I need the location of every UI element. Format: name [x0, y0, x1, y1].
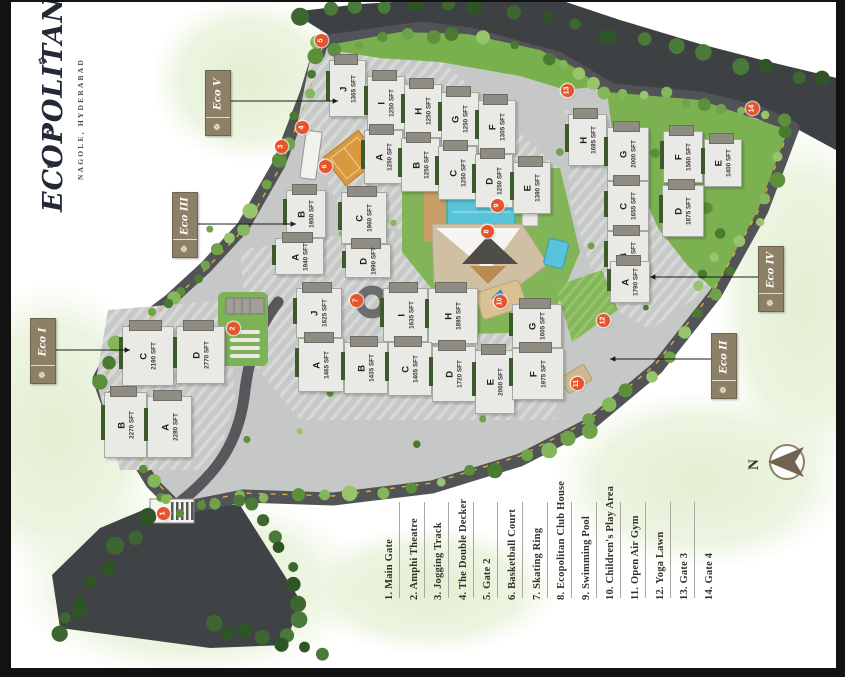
- tree: [378, 1, 391, 14]
- tree: [479, 416, 486, 423]
- tree: [211, 243, 223, 255]
- marker-number: 13: [563, 86, 570, 94]
- legend-item-8: 8. Ecopolitan Club House: [556, 481, 567, 600]
- tower-area: 2280 SFT: [172, 413, 179, 441]
- tower-letter: E: [523, 174, 534, 202]
- tree: [669, 38, 685, 54]
- tree: [543, 53, 555, 65]
- tower-letter: J: [338, 75, 349, 103]
- tree: [324, 2, 338, 16]
- tower-eco-5-f: F1305 SFT: [478, 100, 516, 154]
- tower-area: 1365 SFT: [350, 75, 357, 103]
- tree: [770, 172, 785, 187]
- tree: [59, 612, 70, 623]
- logo-ecopolitan: ECOPOLITAN: [38, 0, 69, 212]
- tree: [197, 501, 206, 510]
- tree: [292, 488, 305, 501]
- tower-eco-4-h: H1685 SFT: [568, 114, 607, 166]
- legend-separator: [596, 502, 597, 598]
- tree: [402, 28, 414, 40]
- tree: [640, 91, 649, 100]
- tower-letter: D: [445, 360, 456, 388]
- tower-eco-5-i: I1250 SFT: [367, 76, 405, 130]
- tree: [759, 193, 770, 204]
- tower-letter: B: [357, 354, 368, 382]
- tower-area: 2060 SFT: [498, 368, 505, 396]
- legend-separator: [399, 502, 400, 598]
- tower-area: 1790 SFT: [633, 268, 640, 296]
- marker-number: 1: [160, 511, 167, 515]
- zone-label-eco-4: Eco IV❁: [758, 246, 784, 312]
- tower-area: 1990 SFT: [371, 247, 378, 275]
- tree: [139, 508, 156, 525]
- tower-letter: A: [160, 413, 171, 441]
- tower-eco-5-j: J1365 SFT: [329, 60, 366, 117]
- tower-eco-2-i: I1635 SFT: [383, 288, 428, 342]
- tree: [756, 218, 764, 226]
- legend-item-14: 14. Gate 4: [704, 553, 715, 600]
- tree: [759, 59, 773, 73]
- tower-area: 1635 SFT: [408, 301, 415, 329]
- tower-letter: H: [444, 302, 455, 330]
- tree: [147, 474, 161, 488]
- tree: [262, 180, 272, 190]
- amphi-stage: [226, 298, 264, 314]
- tower-letter: H: [414, 97, 425, 125]
- tree: [541, 443, 557, 459]
- tree: [161, 494, 171, 504]
- leaf-icon: ❁: [180, 245, 190, 252]
- tree: [734, 235, 746, 247]
- tree: [511, 41, 519, 49]
- tree: [92, 374, 107, 389]
- tower-area: 1435 SFT: [369, 354, 376, 382]
- tree: [286, 577, 301, 592]
- tree: [291, 611, 308, 628]
- tree: [778, 113, 791, 126]
- legend-separator: [497, 502, 498, 598]
- tower-area: 1250 SFT: [497, 167, 504, 195]
- tree: [245, 497, 258, 510]
- map-marker-6: 6: [319, 160, 332, 173]
- tower-letter: C: [619, 192, 630, 220]
- tower-eco-4-g: G2000 SFT: [607, 127, 649, 181]
- zone-label-text: Eco III: [180, 197, 191, 235]
- tree: [587, 77, 600, 90]
- tower-letter: G: [528, 312, 539, 340]
- tree: [693, 308, 703, 318]
- tree: [664, 351, 676, 363]
- marker-number: 10: [496, 297, 503, 305]
- tree: [661, 87, 672, 98]
- tree: [679, 326, 692, 339]
- tower-eco-2-b: B1435 SFT: [344, 342, 388, 394]
- legend-item-3: 3. Jogging Track: [433, 522, 444, 600]
- tower-eco-3-b: B1950 SFT: [286, 190, 326, 238]
- tower-eco-2-f: F1975 SFT: [512, 348, 564, 400]
- tower-letter: G: [619, 140, 630, 168]
- tree: [377, 32, 387, 42]
- tower-eco-5-g: G1250 SFT: [441, 92, 479, 146]
- legend-item-2: 2. Amphi Theatre: [409, 518, 420, 600]
- tower-area: 1720 SFT: [457, 360, 464, 388]
- tree: [290, 111, 299, 120]
- tree: [288, 562, 298, 572]
- legend-item-13: 13. Gate 3: [679, 553, 690, 600]
- tower-eco-1-b: B2270 SFT: [104, 392, 147, 458]
- tree: [319, 490, 330, 501]
- tree: [377, 487, 389, 499]
- tower-area: 1940 SFT: [302, 243, 309, 271]
- tree: [761, 111, 769, 119]
- tree: [342, 486, 358, 502]
- tree: [600, 29, 616, 45]
- tower-eco-4-f: F1560 SFT: [663, 131, 703, 183]
- tower-area: 1250 SFT: [426, 97, 433, 125]
- tower-letter: D: [191, 341, 202, 369]
- logo-location: NAGOLE, HYDERABAD: [76, 58, 85, 180]
- tower-eco-4-e: E1400 SFT: [704, 139, 742, 187]
- leaf-icon: ❁: [766, 299, 776, 306]
- legend-separator: [473, 502, 474, 598]
- legend-item-1: 1. Main Gate: [384, 539, 395, 600]
- tower-area: 1625 SFT: [322, 299, 329, 327]
- tree: [445, 27, 459, 41]
- tower-area: 1400 SFT: [726, 149, 733, 177]
- tower-eco-2-j: J1625 SFT: [296, 288, 342, 338]
- legend-item-7: 7. Skating Ring: [532, 528, 543, 600]
- tree: [646, 371, 658, 383]
- tree: [643, 305, 649, 311]
- legend-separator: [670, 502, 671, 598]
- tower-letter: E: [486, 368, 497, 396]
- tower-area: 2190 SFT: [151, 342, 158, 370]
- tree: [237, 623, 252, 638]
- tower-eco-5-h: H1250 SFT: [404, 84, 442, 138]
- tower-area: 1250 SFT: [389, 89, 396, 117]
- tree: [773, 152, 783, 162]
- tower-area: 1250 SFT: [460, 159, 467, 187]
- tree: [779, 125, 792, 138]
- leaf-icon: ❁: [719, 386, 729, 393]
- tree: [257, 514, 269, 526]
- map-marker-8: 8: [481, 225, 494, 238]
- map-marker-14: 14: [746, 102, 759, 115]
- legend-item-5: 5. Gate 2: [482, 558, 493, 600]
- tree: [291, 8, 309, 26]
- tree: [437, 478, 446, 487]
- legend-separator: [694, 502, 695, 598]
- tree: [716, 104, 726, 114]
- tower-eco-5-e: E1390 SFT: [513, 162, 551, 214]
- legend-item-9: 9. Swimming Pool: [581, 516, 592, 600]
- tree: [355, 41, 363, 49]
- tree: [570, 19, 581, 30]
- tree: [139, 465, 148, 474]
- tree: [695, 44, 712, 61]
- tower-eco-2-c: C1405 SFT: [388, 342, 432, 396]
- tree: [221, 626, 234, 639]
- tree: [194, 274, 203, 283]
- tower-letter: H: [578, 126, 589, 154]
- master-plan: ECOPOLITAN NAGOLE, HYDERABAD ✿ ✿ ✿ N J13…: [0, 0, 845, 677]
- tower-letter: A: [312, 351, 323, 379]
- tree: [237, 223, 250, 236]
- legend-separator: [645, 502, 646, 598]
- tree: [52, 626, 68, 642]
- marker-number: 2: [230, 326, 237, 330]
- tree: [559, 60, 567, 68]
- tree: [650, 149, 659, 158]
- flower-icon: ✿: [38, 56, 46, 67]
- tower-area: 1250 SFT: [386, 143, 393, 171]
- tree: [487, 463, 502, 478]
- tree: [299, 642, 310, 653]
- tree: [618, 89, 627, 98]
- tower-letter: B: [116, 411, 127, 439]
- tree: [224, 233, 235, 244]
- tower-area: 1250 SFT: [423, 151, 430, 179]
- tower-letter: I: [396, 301, 407, 329]
- tower-letter: F: [529, 360, 540, 388]
- tower-eco-1-d: D2770 SFT: [176, 326, 225, 384]
- map-marker-2: 2: [227, 322, 240, 335]
- tower-letter: C: [139, 342, 150, 370]
- legend-separator: [547, 502, 548, 598]
- zone-label-text: Eco V: [213, 78, 224, 110]
- legend-item-4: 4. The Double Decker: [458, 499, 469, 600]
- tree: [272, 153, 287, 168]
- tree: [102, 356, 115, 369]
- legend-item-6: 6. Basketball Court: [507, 509, 518, 600]
- tree: [793, 71, 806, 84]
- tree: [101, 562, 116, 577]
- tree: [243, 203, 258, 218]
- tower-eco-3-c: C1960 SFT: [341, 192, 387, 244]
- marker-number: 4: [299, 125, 306, 129]
- tower-area: 1975 SFT: [541, 360, 548, 388]
- legend-separator: [448, 502, 449, 598]
- tree: [710, 252, 720, 262]
- tree: [84, 576, 96, 588]
- tower-letter: D: [359, 247, 370, 275]
- tree: [698, 98, 711, 111]
- tower-eco-2-d: D1720 SFT: [432, 346, 476, 402]
- tree: [243, 436, 250, 443]
- tree: [464, 465, 475, 476]
- tree: [476, 30, 490, 44]
- tree: [259, 493, 269, 503]
- tower-letter: F: [674, 143, 685, 171]
- legend-item-10: 10. Children's Play Area: [605, 486, 616, 600]
- zone-label-text: Eco II: [719, 340, 730, 373]
- legend-separator: [522, 502, 523, 598]
- zone-label-eco-5: Eco V❁: [205, 70, 231, 136]
- marker-number: 6: [322, 164, 329, 168]
- tower-area: 1560 SFT: [686, 143, 693, 171]
- marker-number: 9: [494, 203, 501, 207]
- map-marker-1: 1: [157, 507, 170, 520]
- tree: [814, 71, 829, 86]
- tree: [255, 630, 270, 645]
- tree: [406, 483, 417, 494]
- tower-letter: A: [374, 143, 385, 171]
- tree: [148, 308, 156, 316]
- tower-letter: C: [448, 159, 459, 187]
- marker-number: 11: [574, 379, 581, 386]
- leaf-icon: ❁: [213, 123, 223, 130]
- tree: [507, 5, 521, 19]
- map-marker-3: 3: [275, 140, 288, 153]
- marker-number: 14: [748, 104, 755, 112]
- tower-letter: F: [488, 113, 499, 141]
- tower-area: 1685 SFT: [590, 126, 597, 154]
- map-marker-11: 11: [571, 377, 584, 390]
- tower-area: 1655 SFT: [631, 192, 638, 220]
- map-marker-5: 5: [315, 34, 328, 47]
- tree: [305, 89, 315, 99]
- tree: [583, 413, 595, 425]
- legend-item-12: 12. Yoga Lawn: [655, 532, 666, 600]
- tree: [206, 615, 223, 632]
- tree: [413, 440, 421, 448]
- tree: [273, 541, 285, 553]
- tree: [682, 100, 690, 108]
- tower-area: 1605 SFT: [540, 312, 547, 340]
- tower-area: 1950 SFT: [309, 200, 316, 228]
- frame-edge: [0, 0, 845, 2]
- tree: [726, 266, 735, 275]
- tower-letter: D: [674, 197, 685, 225]
- tower-letter: C: [401, 355, 412, 383]
- tower-area: 1875 SFT: [686, 197, 693, 225]
- tree: [206, 226, 213, 233]
- tower-letter: A: [290, 243, 301, 271]
- tree: [201, 261, 211, 271]
- tower-eco-4-d: D1875 SFT: [662, 185, 704, 237]
- tree: [638, 32, 652, 46]
- leaf-icon: ❁: [38, 371, 48, 378]
- tower-area: 1960 SFT: [367, 204, 374, 232]
- zone-label-eco-3: Eco III❁: [172, 192, 198, 258]
- map-marker-13: 13: [561, 84, 574, 97]
- zone-label-text: Eco IV: [766, 252, 777, 288]
- marker-number: 3: [278, 144, 285, 148]
- frame-edge: [0, 0, 11, 677]
- legend-item-11: 11. Open Air Gym: [630, 515, 641, 600]
- marker-number: 5: [318, 38, 325, 42]
- tree: [316, 648, 329, 661]
- tower-eco-1-c: C2190 SFT: [122, 326, 174, 386]
- tower-area: 2770 SFT: [203, 341, 210, 369]
- tower-eco-3-d: D1990 SFT: [345, 244, 391, 278]
- tower-letter: D: [485, 167, 496, 195]
- tree: [598, 87, 611, 100]
- tower-letter: J: [310, 299, 321, 327]
- legend-separator: [620, 502, 621, 598]
- tower-eco-2-h: H1895 SFT: [428, 288, 478, 344]
- tree: [619, 383, 633, 397]
- tower-letter: B: [411, 151, 422, 179]
- tower-eco-3-a: A1940 SFT: [275, 238, 324, 275]
- tree: [588, 242, 595, 249]
- tree: [164, 299, 173, 308]
- tower-eco-4-a: A1790 SFT: [610, 261, 650, 303]
- tower-area: 1465 SFT: [324, 351, 331, 379]
- marker-number: 7: [353, 298, 360, 302]
- tree: [715, 228, 726, 239]
- tree: [427, 30, 441, 44]
- zone-label-eco-1: Eco I❁: [30, 318, 56, 384]
- tree: [129, 531, 143, 545]
- tower-letter: I: [377, 89, 388, 117]
- tree: [521, 449, 533, 461]
- tower-letter: E: [714, 149, 725, 177]
- tower-letter: G: [451, 105, 462, 133]
- tree: [602, 397, 616, 411]
- map-marker-9: 9: [491, 199, 504, 212]
- zone-label-text: Eco I: [38, 328, 49, 357]
- tree: [308, 48, 324, 64]
- tree: [209, 498, 220, 509]
- tree: [698, 270, 707, 279]
- tree: [176, 509, 184, 517]
- zone-label-eco-2: Eco II❁: [711, 333, 737, 399]
- tower-eco-1-a: A2280 SFT: [147, 396, 192, 458]
- frame-edge: [0, 668, 845, 677]
- tower-eco-2-a: A1465 SFT: [298, 338, 344, 392]
- tower-area: 1305 SFT: [500, 113, 507, 141]
- tower-area: 2270 SFT: [128, 411, 135, 439]
- map-marker-10: 10: [494, 295, 507, 308]
- tree: [737, 107, 745, 115]
- map-marker-4: 4: [296, 121, 309, 134]
- flower-icon: ✿: [46, 160, 54, 171]
- tree: [390, 220, 396, 226]
- tree: [290, 596, 306, 612]
- compass-north-label: N: [746, 459, 763, 470]
- tree: [732, 58, 749, 75]
- tree: [233, 495, 245, 507]
- tower-area: 1250 SFT: [463, 105, 470, 133]
- flower-icon: ✿: [46, 128, 54, 139]
- tree: [297, 428, 303, 434]
- tree: [693, 281, 703, 291]
- tree: [307, 70, 316, 79]
- north-compass-icon: [754, 435, 814, 489]
- tree: [71, 602, 87, 618]
- tree: [274, 638, 288, 652]
- legend-separator: [571, 502, 572, 598]
- tower-area: 1895 SFT: [456, 302, 463, 330]
- map-marker-12: 12: [597, 314, 610, 327]
- tower-letter: C: [355, 204, 366, 232]
- tower-area: 1405 SFT: [413, 355, 420, 383]
- tree: [573, 67, 585, 79]
- tower-eco-4-c: C1655 SFT: [607, 181, 649, 231]
- tower-area: 1390 SFT: [535, 174, 542, 202]
- tree: [556, 148, 564, 156]
- map-marker-7: 7: [350, 294, 363, 307]
- tree: [106, 537, 124, 555]
- tower-letter: A: [621, 268, 632, 296]
- tree: [542, 12, 554, 24]
- marker-number: 12: [599, 316, 606, 324]
- marker-number: 8: [484, 229, 491, 233]
- legend-separator: [424, 502, 425, 598]
- tree: [560, 431, 575, 446]
- tower-letter: B: [297, 200, 308, 228]
